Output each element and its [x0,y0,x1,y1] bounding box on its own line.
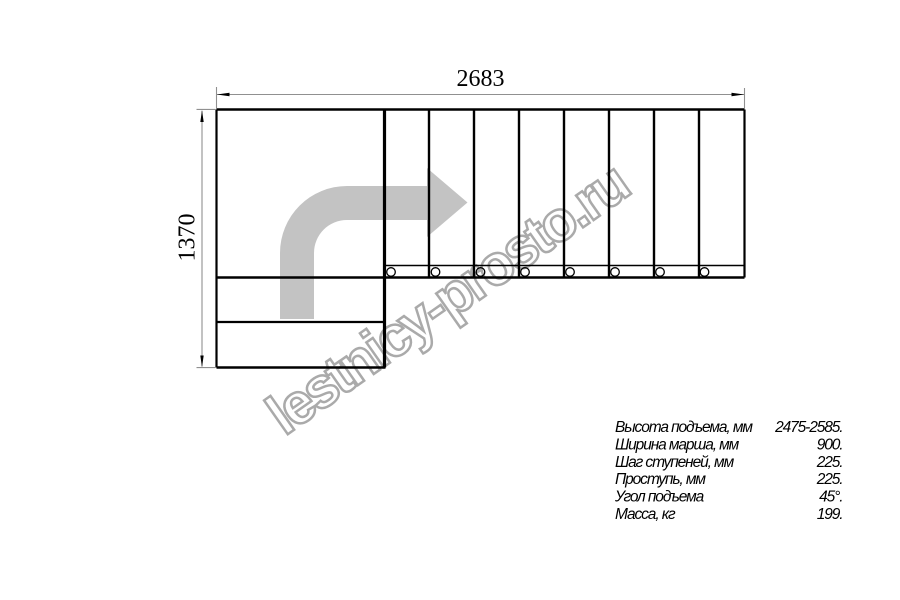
svg-text:Угол подъема: Угол подъема [614,489,705,506]
svg-text:1370: 1370 [175,214,201,262]
svg-text:225.: 225. [816,471,843,488]
svg-text:Проступь, мм: Проступь, мм [615,471,706,488]
svg-text:2475-2585.: 2475-2585. [774,419,842,436]
svg-text:Масса, кг: Масса, кг [615,506,676,523]
svg-text:900.: 900. [817,436,843,453]
svg-text:Шаг ступеней, мм: Шаг ступеней, мм [615,454,735,471]
svg-text:2683: 2683 [457,66,505,92]
svg-text:45°.: 45°. [819,489,842,506]
svg-text:Высота подъема, мм: Высота подъема, мм [615,419,753,436]
svg-text:Ширина марша, мм: Ширина марша, мм [615,436,740,453]
svg-text:199.: 199. [817,506,843,523]
svg-text:225.: 225. [816,454,843,471]
